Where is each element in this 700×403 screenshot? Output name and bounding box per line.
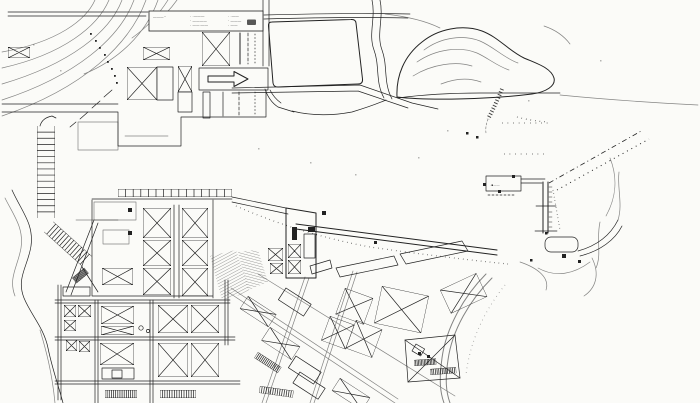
river [372, 0, 392, 99]
legend-row1-left: · ·――― [190, 15, 205, 19]
legend-row2-left: · ―――― [190, 19, 207, 23]
orthogonal-street-grid [55, 280, 240, 403]
diagonal-street-grid [228, 271, 505, 403]
legend-row1-right: · ·―― [228, 15, 239, 19]
arcade-comb [105, 390, 137, 398]
harbor-plan-drawing: ―――·· · ·――― · ·―― · ―――― · ――― · ――·―― … [0, 0, 700, 403]
promenade-median-strips [310, 241, 468, 277]
legend-heading: ―――·· [153, 15, 166, 19]
stream-west [5, 190, 63, 403]
left-city-superblock [66, 200, 213, 298]
pier-label-text: ·▪―― [490, 183, 500, 187]
east-pier-group: ·▪―― [483, 172, 622, 290]
warehouse-row [118, 189, 232, 197]
promontory-hill [397, 26, 570, 99]
arrow-band [199, 68, 268, 90]
harbor-legend: ―――·· · ·――― · ·―― · ―――― · ――― · ――·―― … [149, 11, 263, 31]
ferry-route-dashes [466, 123, 649, 190]
legend-row3-left: · ――·―― [190, 24, 209, 28]
arcade-comb [160, 390, 196, 398]
waterfront [92, 189, 508, 300]
legend-row3-right: · ―― [228, 24, 238, 28]
diagonal-city-blocks [240, 273, 487, 403]
railway-ladder-bands [37, 116, 98, 292]
legend-row2-right: · ――― [228, 19, 242, 23]
central-pier [268, 208, 326, 278]
scan-speckles [33, 44, 602, 176]
legend-swatch [247, 20, 256, 26]
flow-arrow-icon [208, 72, 248, 87]
scanned-harbor-plan: ―――·· · ·――― · ·―― · ―――― · ――― · ――·―― … [0, 0, 700, 403]
pier-head [545, 237, 578, 252]
